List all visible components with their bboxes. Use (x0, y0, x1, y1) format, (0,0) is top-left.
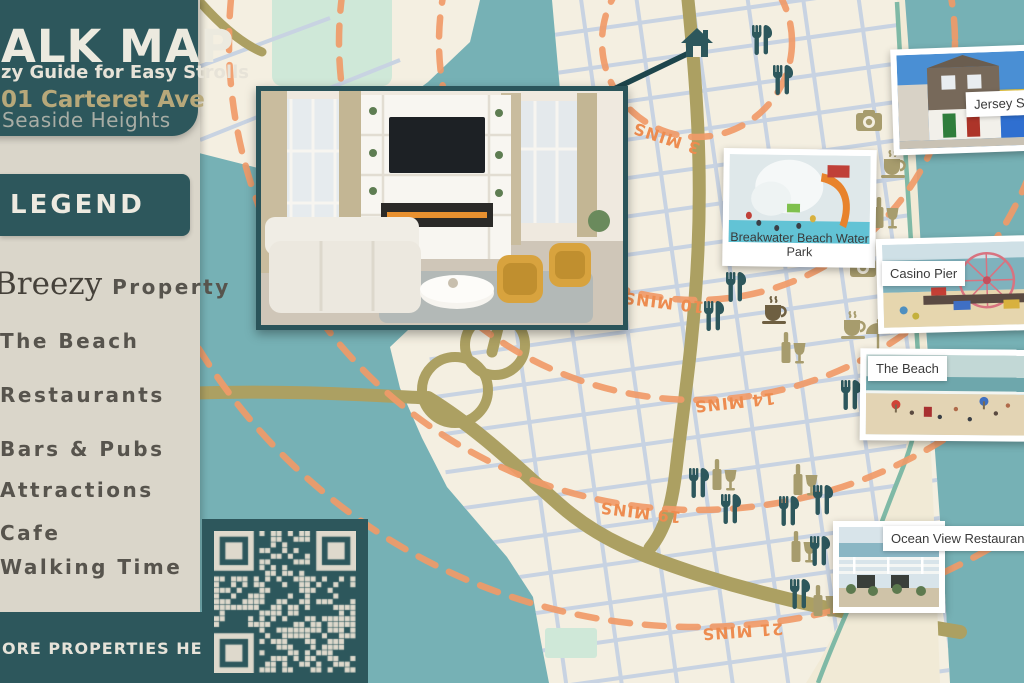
more-properties-banner[interactable]: ORE PROPERTIES HERE >> (0, 612, 203, 683)
house-icon (681, 28, 713, 57)
brand-logo: Breezy (0, 266, 102, 302)
walk-time-label: 21 MINS (701, 619, 784, 644)
card-label-the-beach: The Beach (868, 356, 947, 381)
property-photo-inset (256, 86, 628, 330)
wine-bottle-glass-icon (875, 197, 899, 229)
wine-bottle-glass-icon (782, 332, 806, 364)
fork-knife-icon (813, 485, 833, 515)
park-green (272, 0, 392, 86)
walking-time-ring-3min (602, 0, 792, 137)
fork-knife-icon (704, 301, 724, 331)
walk-time-label: 10 MINS (622, 288, 705, 317)
card-label-ocean-view: Ocean View Restaurant (883, 526, 1024, 551)
fork-knife-icon (779, 496, 799, 526)
fork-knife-icon (790, 579, 810, 609)
legend-item-the-beach: The Beach (0, 329, 139, 353)
fork-knife-icon (773, 65, 793, 95)
fork-knife-icon (721, 494, 741, 524)
wine-bottle-glass-icon (794, 464, 818, 496)
coffee-cup-icon (762, 297, 786, 324)
brand-property-label: Property (112, 275, 231, 299)
camera-icon (856, 110, 882, 131)
legend-item-cafe: Cafe (0, 521, 60, 545)
walk-time-label: 14 MINS (693, 389, 776, 416)
fork-knife-icon (689, 468, 709, 498)
card-label-jersey-shore: Jersey Sh (966, 88, 1024, 117)
poster-subtitle: zy Guide for Easy Strolls (1, 62, 249, 83)
living-room-photo (261, 91, 623, 325)
wine-bottle-glass-icon (792, 531, 816, 563)
qr-code-pattern (214, 531, 356, 673)
fork-knife-icon (726, 272, 746, 302)
coffee-cup-icon (841, 312, 865, 339)
legend-item-restaurants: Restaurants (0, 383, 165, 407)
legend-item-breezy-property: BreezyProperty (0, 266, 231, 302)
fork-knife-icon (841, 380, 861, 410)
park-green-small (545, 628, 597, 658)
wine-bottle-glass-icon (713, 459, 737, 491)
card-label-breakwater: Breakwater Beach Water Park (723, 230, 876, 260)
legend-item-attractions: Attractions (0, 478, 154, 502)
qr-code[interactable] (202, 519, 368, 683)
legend-item-bars-pubs: Bars & Pubs (0, 437, 165, 461)
walk-map-poster: 3 MINS10 MINS14 MINS19 MINS21 MINS (0, 0, 1024, 683)
leader-line (612, 53, 689, 90)
legend-header: LEGEND (0, 174, 190, 236)
card-label-casino-pier: Casino Pier (882, 261, 965, 286)
legend-title: LEGEND (10, 190, 145, 220)
fork-knife-icon (810, 536, 830, 566)
walk-time-label: 3 MINS (630, 118, 702, 158)
walk-time-label: 19 MINS (599, 498, 682, 527)
legend-item-walking-time: Walking Time (0, 555, 182, 579)
fork-knife-icon (752, 25, 772, 55)
property-city: Seaside Heights (2, 108, 171, 132)
